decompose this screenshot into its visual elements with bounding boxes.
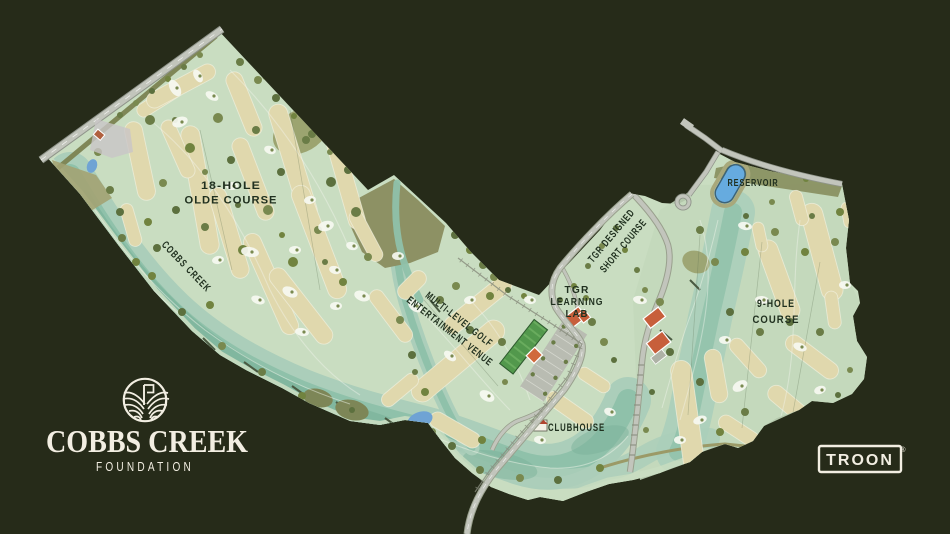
svg-text:LEARNING: LEARNING <box>551 296 604 308</box>
svg-text:OLDE COURSE: OLDE COURSE <box>185 195 278 207</box>
svg-text:COURSE: COURSE <box>753 314 800 326</box>
svg-text:TROON: TROON <box>826 452 894 469</box>
svg-text:9-HOLE: 9-HOLE <box>757 298 795 310</box>
svg-text:CLUBHOUSE: CLUBHOUSE <box>548 422 605 434</box>
svg-text:LAB: LAB <box>566 308 589 320</box>
svg-text:COBBS CREEK: COBBS CREEK <box>46 423 248 459</box>
svg-text:RESERVOIR: RESERVOIR <box>728 178 779 189</box>
svg-text:TGR: TGR <box>565 284 590 296</box>
svg-text:18-HOLE: 18-HOLE <box>201 180 261 192</box>
svg-text:FOUNDATION: FOUNDATION <box>96 460 194 474</box>
svg-text:®: ® <box>900 446 906 454</box>
